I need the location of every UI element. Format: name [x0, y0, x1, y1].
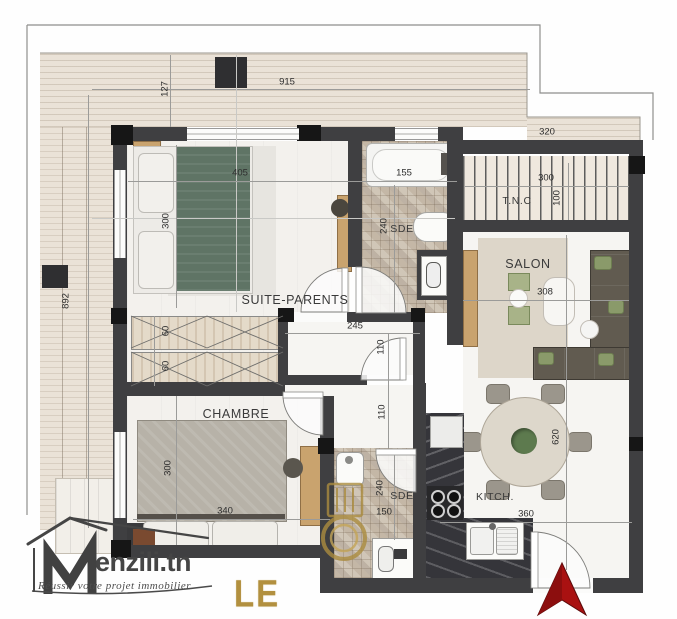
wall-pillar — [629, 437, 643, 451]
sofa-cushion — [598, 353, 614, 366]
dim-line — [92, 89, 530, 90]
dim-60-a: 60 — [161, 326, 171, 337]
side-table — [580, 320, 599, 339]
dim-915: 915 — [279, 77, 295, 87]
menzili-brand-name: enzili.tn — [95, 547, 191, 578]
dim-60-b: 60 — [161, 361, 171, 372]
wall-pillar — [111, 308, 127, 324]
fridge — [430, 416, 463, 448]
wall — [629, 154, 643, 593]
dim-line — [388, 333, 389, 448]
chambre-stool — [283, 458, 303, 478]
basin-drain — [345, 456, 353, 464]
entrance-door-gap — [533, 578, 593, 593]
machine-door — [378, 546, 394, 572]
wall-pillar — [411, 308, 425, 322]
wall — [438, 127, 463, 141]
room-label-chambre: CHAMBRE — [203, 407, 270, 421]
dim-line — [285, 333, 420, 334]
dim-320: 320 — [539, 127, 555, 137]
wall — [447, 141, 463, 345]
suite-stool — [331, 199, 349, 217]
project-title: LE BOULEVARD — [234, 572, 494, 619]
dim-line — [176, 145, 177, 308]
dim-155: 155 — [396, 168, 412, 178]
wall — [278, 312, 288, 385]
dim-110-a: 110 — [376, 339, 386, 354]
sofa-cushion — [538, 352, 554, 365]
dim-line — [568, 163, 569, 220]
pillow — [138, 153, 174, 213]
dim-127: 127 — [160, 81, 170, 97]
dim-405: 405 — [232, 168, 248, 178]
burner — [431, 490, 445, 504]
sink-faucet — [489, 523, 496, 530]
wall-pillar — [111, 125, 133, 145]
room-label-sde-top: SDE — [390, 223, 413, 235]
wall — [348, 141, 362, 267]
dim-100-tnc: 100 — [552, 190, 562, 206]
wall — [288, 375, 367, 385]
floor-plan: 915 127 892 320 405 155 300 240 300 100 … — [0, 0, 677, 619]
dim-360: 360 — [518, 509, 534, 519]
tv-console — [463, 250, 478, 347]
room-label-suite-parents: SUITE-PARENTS — [242, 293, 349, 307]
wall — [113, 382, 285, 396]
coffee-table — [543, 277, 575, 326]
dim-892: 892 — [61, 293, 71, 309]
sink-drainer — [496, 527, 518, 555]
dim-line — [440, 522, 632, 523]
sink-basin — [470, 527, 494, 555]
room-label-tnc: T.N.C — [502, 195, 531, 207]
stairs-treads — [463, 154, 629, 222]
dim-340: 340 — [217, 506, 233, 516]
dim-620: 620 — [551, 429, 561, 445]
table-plant — [511, 428, 537, 454]
plant-tray — [508, 306, 530, 325]
dim-line — [465, 186, 629, 187]
terrace-column — [215, 57, 247, 88]
dim-110-b: 110 — [377, 404, 387, 419]
dining-chair — [568, 432, 592, 452]
burner — [447, 490, 461, 504]
dim-308: 308 — [537, 287, 553, 297]
wall-pillar — [318, 438, 334, 454]
terrace-column — [42, 265, 68, 288]
dim-line — [394, 185, 395, 313]
window — [395, 128, 438, 140]
door-gap — [293, 312, 347, 322]
wall-pillar — [297, 125, 321, 141]
toilet-seat — [426, 262, 441, 288]
wall — [463, 140, 643, 154]
terrace-top — [40, 53, 527, 127]
dim-line — [88, 95, 89, 528]
wall-pillar — [278, 308, 294, 322]
chambre-dresser — [300, 446, 322, 526]
dining-chair — [541, 480, 565, 500]
burner — [447, 504, 461, 518]
dim-240-sde-bottom: 240 — [375, 480, 385, 496]
dim-240-sde-top: 240 — [379, 218, 389, 234]
dim-150: 150 — [376, 507, 392, 517]
dim-line — [154, 316, 155, 386]
window — [187, 128, 299, 140]
dim-line — [463, 300, 629, 301]
burner — [431, 504, 445, 518]
menzili-tagline: Réussir votre projet immobilier — [38, 580, 191, 592]
decor-bowl — [509, 289, 528, 308]
wall-pillar — [629, 156, 645, 174]
room-label-kitchen: KITCH. — [476, 491, 514, 503]
machine-control — [394, 549, 407, 559]
window — [114, 170, 126, 258]
dim-extension-line — [92, 218, 455, 219]
dim-300-suite: 300 — [161, 213, 171, 229]
terrace-left — [40, 127, 113, 530]
dim-300-chambre: 300 — [163, 460, 173, 476]
sofa-cushion — [594, 256, 612, 270]
wall — [413, 383, 426, 578]
room-label-sde-bottom: SDE — [390, 490, 413, 502]
sofa-cushion — [608, 300, 624, 314]
dim-extension-line — [236, 55, 237, 312]
dim-300-tnc: 300 — [538, 173, 554, 183]
dim-line — [566, 235, 567, 570]
room-label-salon: SALON — [505, 257, 550, 271]
dim-line — [128, 181, 457, 182]
wall — [463, 220, 629, 232]
dim-245: 245 — [347, 321, 363, 331]
pillow — [138, 231, 174, 289]
